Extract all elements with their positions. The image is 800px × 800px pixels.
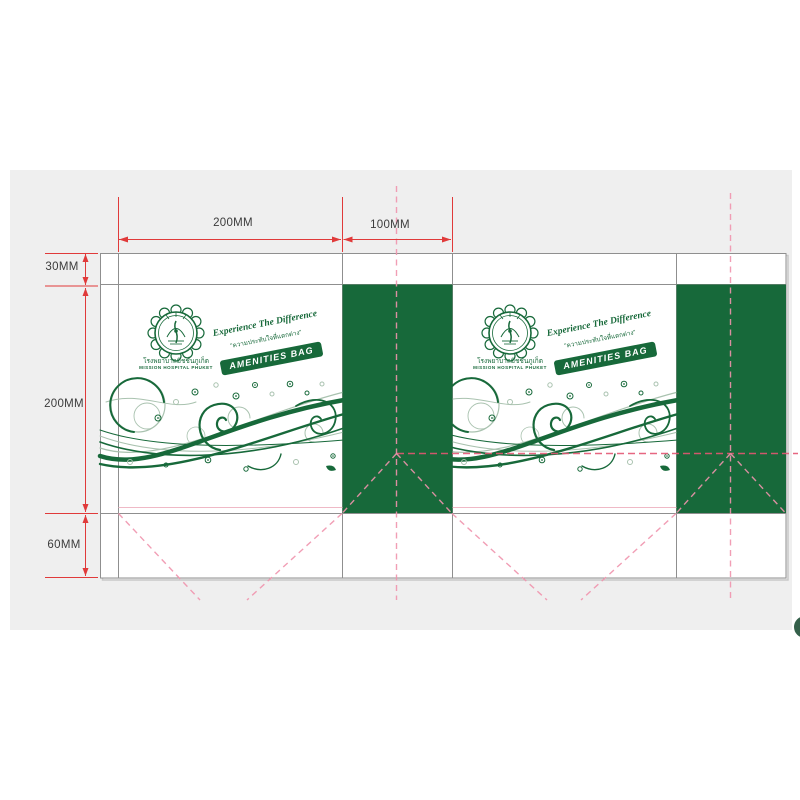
dimension-label-bottom-flap: 60MM [42, 539, 86, 551]
hospital-name-english: MISSION HOSPITAL PHUKET [128, 365, 224, 370]
dimension-label-panel-width: 200MM [198, 217, 268, 229]
bag-dieline-drawing [0, 0, 800, 800]
dimension-label-top-flap: 30MM [42, 261, 82, 273]
side-gusset-2 [677, 285, 787, 514]
side-gusset-1 [343, 285, 453, 514]
dimension-label-panel-height: 200MM [40, 398, 88, 410]
hospital-name-english: MISSION HOSPITAL PHUKET [462, 365, 558, 370]
dimension-label-gusset-width: 100MM [362, 219, 418, 231]
